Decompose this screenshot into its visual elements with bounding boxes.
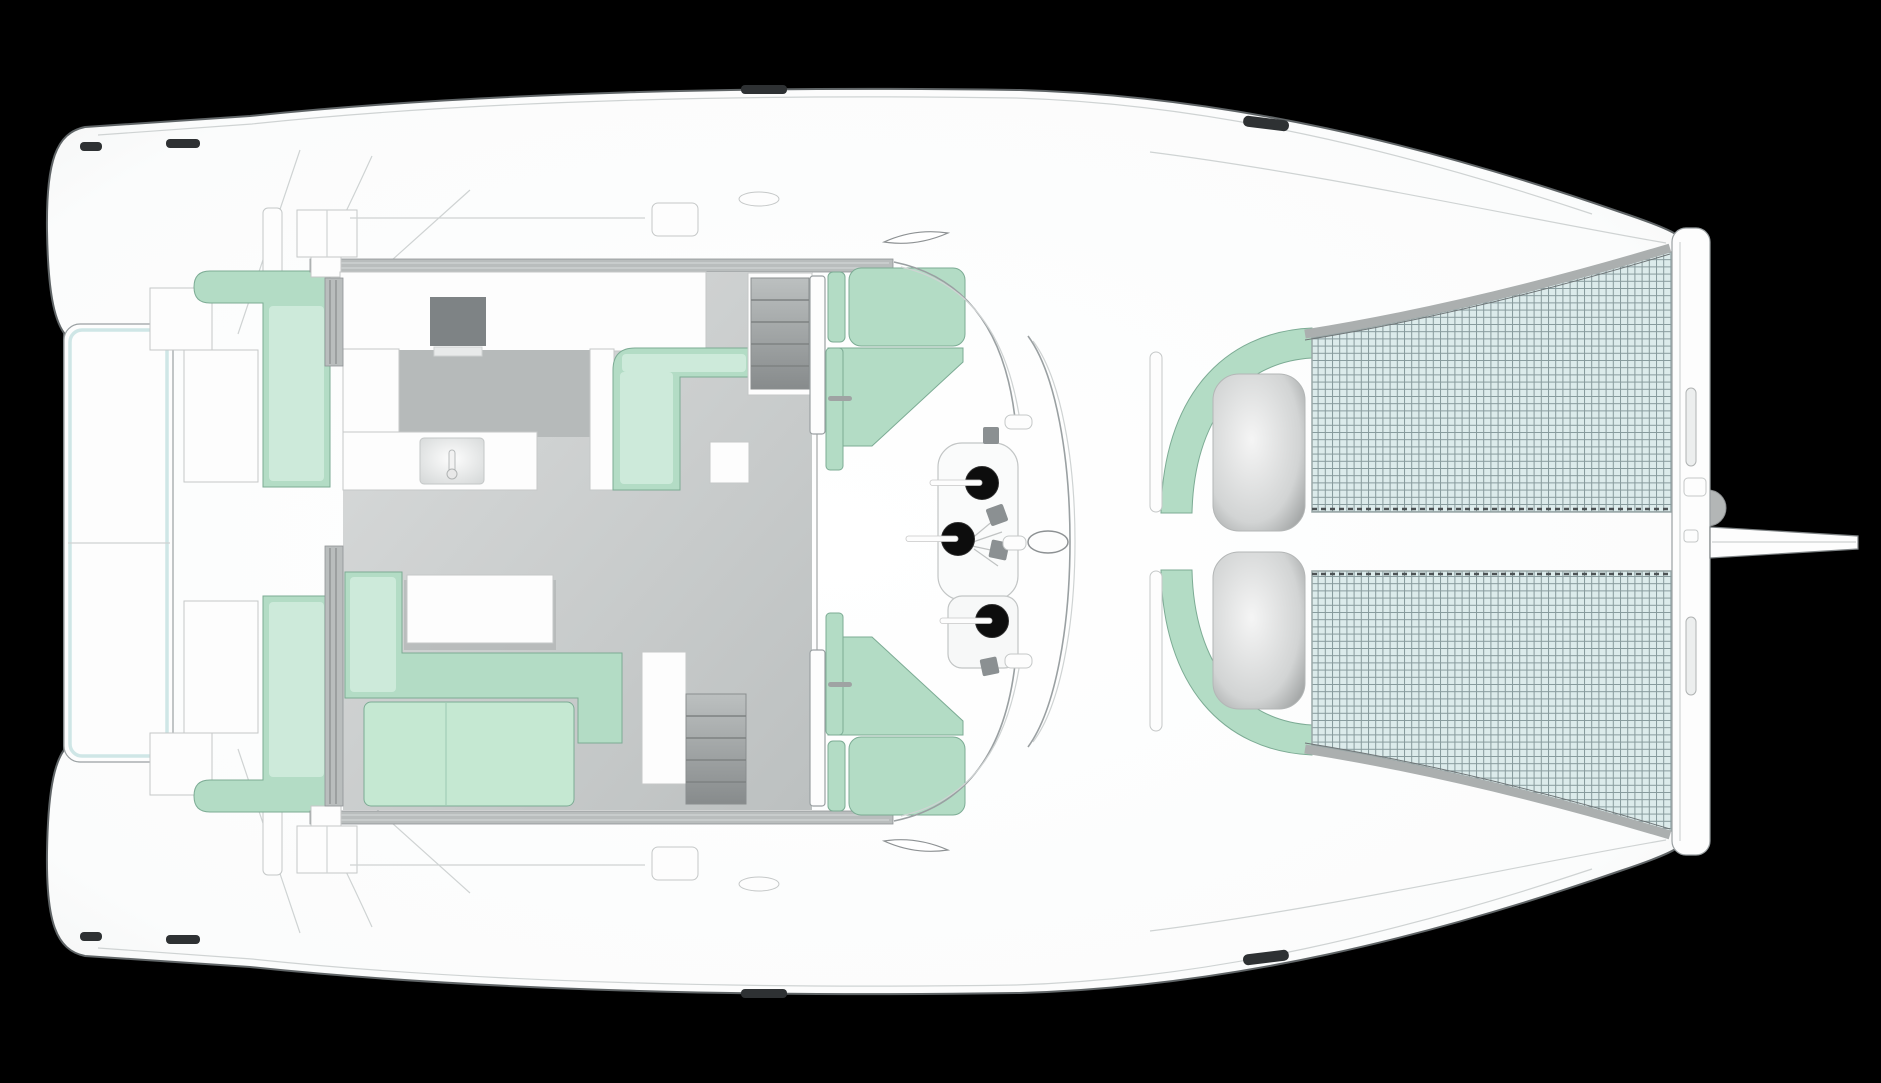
clutch-box-1 [983, 427, 999, 444]
port-cockpit-bench [849, 268, 965, 346]
starboard-rail-cleat-aft [741, 989, 787, 998]
lounge-cabinet [642, 652, 686, 784]
winch-1-handle [930, 480, 982, 486]
starboard-coachroof-window [1150, 571, 1162, 731]
daybed [364, 702, 574, 806]
starboard-grab-rail [828, 682, 852, 687]
saloon-aft-door-track-upper [325, 278, 343, 366]
saloon [325, 272, 812, 810]
lounge-sofa-cushion [350, 577, 396, 692]
crossbeam-fitting-1 [1684, 478, 1706, 496]
starboard-cockpit-bench [849, 737, 965, 815]
deck-cleat-forward-port [1005, 415, 1032, 429]
galley-forward-counter [340, 272, 706, 351]
port-deck-vent [739, 192, 779, 206]
deck-cleat-forward-starboard [1005, 654, 1032, 668]
starboard-aft-table [184, 601, 258, 733]
starboard-aft-sofa-cushion [269, 602, 324, 777]
anchor-roller [1708, 490, 1726, 526]
winch-2-handle [906, 536, 958, 542]
coffee-table [407, 575, 553, 643]
galley-stove-ledge [434, 347, 482, 356]
catamaran-deck-plan [0, 0, 1881, 1083]
hull-silhouette [47, 89, 1677, 994]
dinette-settee-cushion-side [620, 372, 673, 484]
port-aft-sofa-cushion [269, 306, 324, 481]
port-aft-table [184, 350, 258, 482]
sliding-door-panel-upper [810, 276, 825, 434]
crossbeam-slot-lower [1686, 617, 1696, 695]
port-grab-rail [828, 396, 852, 401]
port-cockpit-back-pad [828, 272, 845, 342]
saloon-aft-door-track-lower [325, 546, 343, 806]
port-side-track [310, 259, 893, 272]
clutch-box-4 [980, 656, 1000, 676]
port-deck-box [652, 203, 698, 236]
sliding-door-panel-lower [810, 650, 825, 806]
port-rail-cleat-aft [741, 85, 787, 94]
galley-floor [398, 350, 592, 437]
port-cockpit-backrest [826, 348, 843, 470]
port-companionway-stairs [751, 278, 809, 389]
galley-stove [430, 297, 486, 346]
dinette-settee-cushion-top [622, 354, 746, 372]
galley-faucet-base [447, 469, 457, 479]
starboard-transom-handle-1 [80, 932, 102, 941]
port-transom-handle-2 [166, 139, 200, 148]
starboard-cockpit-backrest [826, 613, 843, 735]
starboard-sun-pad [1213, 552, 1305, 709]
hull-outline [47, 89, 1677, 994]
deck-plan-svg [0, 0, 1881, 1083]
port-transom-handle-1 [80, 142, 102, 151]
starboard-transom-handle-2 [166, 935, 200, 944]
crossbeam-slot-upper [1686, 388, 1696, 466]
starboard-companionway-stairs [686, 694, 746, 804]
starboard-cockpit-back-pad [828, 741, 845, 811]
starboard-deck-vent [739, 877, 779, 891]
mast-foot [1028, 531, 1068, 553]
bow-structure [1672, 228, 1858, 855]
port-coachroof-window [1150, 352, 1162, 512]
crossbeam-fitting-2 [1684, 530, 1698, 542]
starboard-side-track [310, 811, 893, 824]
galley-counter-end [590, 349, 614, 490]
starboard-deck-box [652, 847, 698, 880]
winch-3-handle [940, 618, 992, 624]
deck-cleat-mid [1003, 536, 1026, 550]
dinette-table [710, 442, 749, 483]
port-sun-pad [1213, 374, 1305, 531]
